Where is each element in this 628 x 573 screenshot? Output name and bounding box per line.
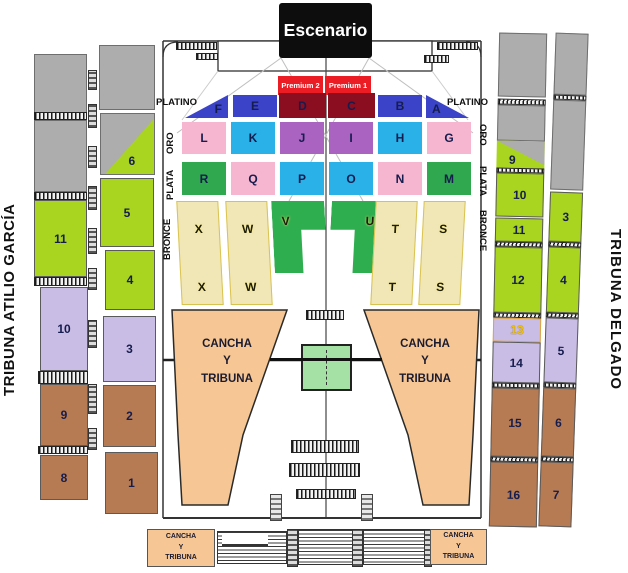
section-bronce-S[interactable]: S S xyxy=(418,201,465,305)
cancha-right-label: CANCHA Y TRIBUNA xyxy=(385,336,465,388)
section-label: F xyxy=(215,102,222,116)
platino-label-left: PLATINO xyxy=(156,97,197,108)
stairs-stack xyxy=(88,268,97,290)
section-left-5[interactable]: 5 xyxy=(100,178,154,247)
section-left-9[interactable]: 9 xyxy=(40,384,88,446)
section-bronce-W[interactable]: W W xyxy=(225,201,272,305)
section-plata-Q[interactable]: Q xyxy=(231,162,275,195)
field-grid xyxy=(306,310,344,320)
gray-block xyxy=(99,45,155,110)
stairs-stack xyxy=(88,228,97,254)
section-platino-B[interactable]: B xyxy=(378,95,422,117)
bleacher-gap xyxy=(222,533,268,546)
stairs-stack xyxy=(88,186,97,210)
section-right-15[interactable]: 15 xyxy=(490,387,539,457)
section-right-5[interactable]: 5 xyxy=(543,317,578,383)
section-label: T xyxy=(391,222,399,236)
bleacher-stairs xyxy=(352,529,363,567)
section-left-10[interactable]: 10 xyxy=(40,287,88,371)
stairs-strip xyxy=(437,42,478,50)
section-plata-O[interactable]: O xyxy=(329,162,373,195)
section-right-14[interactable]: 14 xyxy=(492,341,541,383)
section-label: W xyxy=(242,222,254,236)
section-oro-G[interactable]: G xyxy=(427,122,471,154)
section-plata-R[interactable]: R xyxy=(182,162,226,195)
stairs-strip xyxy=(34,192,87,200)
stairs-strip xyxy=(196,53,218,60)
section-left-1[interactable]: 1 xyxy=(105,452,158,514)
seating-map: TRIBUNA ATILIO GARCÍA TRIBUNA DELGADO Es… xyxy=(0,0,628,573)
section-label: S xyxy=(436,280,445,294)
section-oro-K[interactable]: K xyxy=(231,122,275,154)
stairs-strip xyxy=(38,371,88,384)
section-left-4[interactable]: 4 xyxy=(105,250,155,310)
stairs-stack xyxy=(88,70,97,90)
gray-block xyxy=(498,33,547,98)
section-left-11[interactable]: 11 xyxy=(34,200,87,277)
section-oro-H[interactable]: H xyxy=(378,122,422,154)
tower xyxy=(270,494,282,521)
stairs-stack xyxy=(88,146,97,168)
section-label: 6 xyxy=(129,154,136,168)
field-grid xyxy=(291,440,359,453)
gray-block xyxy=(34,120,87,192)
section-plata-N[interactable]: N xyxy=(378,162,422,195)
section-right-3[interactable]: 3 xyxy=(548,191,583,242)
stairs-stack xyxy=(88,384,97,414)
section-right-7[interactable]: 7 xyxy=(538,461,573,527)
gray-block xyxy=(550,100,586,191)
plata-label-right: PLATA xyxy=(477,166,488,200)
stairs-strip xyxy=(34,112,87,120)
bronce-label-right: BRONCE xyxy=(477,210,488,260)
section-oro-L[interactable]: L xyxy=(182,122,226,154)
barrier-line xyxy=(270,358,382,361)
field-grid xyxy=(289,463,360,477)
tower xyxy=(361,494,373,521)
section-label: W xyxy=(245,280,257,294)
section-platino-E[interactable]: E xyxy=(233,95,277,117)
section-left-6[interactable]: 6 xyxy=(100,113,155,175)
section-platino-C[interactable]: C xyxy=(328,93,375,118)
section-label: S xyxy=(439,222,448,236)
gray-block xyxy=(497,105,546,142)
oro-label-right: ORO xyxy=(477,124,488,154)
stage: Escenario xyxy=(279,3,372,58)
field-grid xyxy=(296,489,356,499)
bronce-label-left: BRONCE xyxy=(162,210,173,260)
cancha-bottom-right[interactable]: CANCHA Y TRIBUNA xyxy=(430,529,487,565)
section-oro-J[interactable]: J xyxy=(280,122,324,154)
stairs-stack xyxy=(88,320,97,348)
section-platino-D[interactable]: D xyxy=(279,93,326,118)
bleacher xyxy=(298,529,353,565)
section-right-6[interactable]: 6 xyxy=(541,387,576,457)
stairs-strip xyxy=(176,42,217,50)
bleacher xyxy=(363,529,425,565)
section-right-13[interactable]: 13 xyxy=(493,317,541,342)
right-tribune-title: TRIBUNA DELGADO xyxy=(597,165,624,455)
oro-label-left: ORO xyxy=(165,124,176,154)
section-right-4[interactable]: 4 xyxy=(546,246,581,313)
section-label: V xyxy=(281,214,290,228)
stairs-strip xyxy=(424,55,449,63)
section-label: 9 xyxy=(509,153,516,167)
plata-label-left: PLATA xyxy=(165,166,176,200)
section-label: T xyxy=(388,280,396,294)
stairs-strip xyxy=(34,277,87,286)
section-bronce-X[interactable]: X X xyxy=(176,201,223,305)
section-left-3[interactable]: 3 xyxy=(103,316,156,382)
section-bronce-T[interactable]: T T xyxy=(370,201,417,305)
section-right-11[interactable]: 11 xyxy=(495,218,543,243)
cancha-left-label: CANCHA Y TRIBUNA xyxy=(187,336,267,388)
section-plata-M[interactable]: M xyxy=(427,162,471,195)
green-triangle xyxy=(101,114,154,174)
center-box-micro-text xyxy=(326,350,328,384)
section-label: U xyxy=(365,214,374,228)
stairs-stack xyxy=(88,104,97,128)
stairs-strip xyxy=(38,446,88,454)
gray-block xyxy=(34,54,87,113)
section-label: A xyxy=(432,102,441,116)
section-label: X xyxy=(197,280,206,294)
section-left-8[interactable]: 8 xyxy=(40,455,88,500)
section-right-16[interactable]: 16 xyxy=(489,461,538,527)
section-right-12[interactable]: 12 xyxy=(493,247,542,314)
gray-block xyxy=(553,33,588,96)
section-oro-I[interactable]: I xyxy=(329,122,373,154)
platino-label-right: PLATINO xyxy=(447,97,488,108)
section-left-2[interactable]: 2 xyxy=(103,385,156,447)
section-right-9[interactable]: 9 xyxy=(496,141,545,169)
cancha-bottom-left[interactable]: CANCHA Y TRIBUNA xyxy=(147,529,215,567)
section-label: X xyxy=(194,222,203,236)
center-platform xyxy=(301,344,352,391)
stairs-stack xyxy=(88,428,97,450)
gray-triangle xyxy=(496,141,545,169)
bleacher-stairs xyxy=(287,529,298,567)
section-right-10[interactable]: 10 xyxy=(495,173,544,218)
section-plata-P[interactable]: P xyxy=(280,162,324,195)
left-tribune-title: TRIBUNA ATILIO GARCÍA xyxy=(1,130,28,470)
